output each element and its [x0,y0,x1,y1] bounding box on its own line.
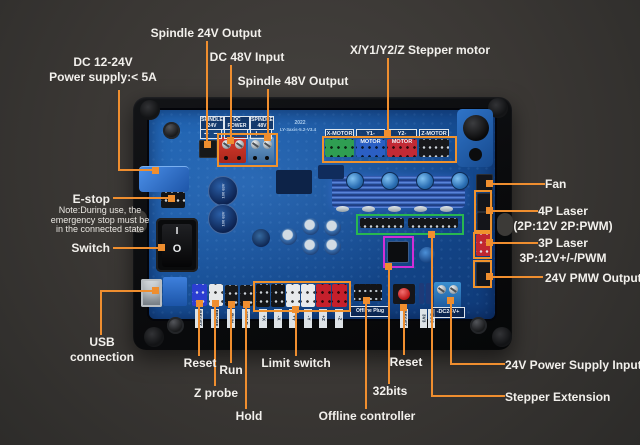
solder-pad [440,206,453,212]
stepper-extension-highlight-box [356,214,464,235]
callout-text: in the connected state [20,225,180,235]
callout-line [100,290,154,292]
callout-marker [385,263,392,270]
capacitor [324,219,341,236]
cap-marking: 100 63V [221,184,225,199]
callout-marker [227,137,234,144]
callout-marker [168,195,175,202]
solder-pad [336,206,349,212]
solder-pad [414,206,427,212]
terminal-screw [449,285,458,294]
callout-marker [486,239,493,246]
callout-marker [400,304,407,311]
cap-marking: 100 63V [221,212,225,227]
callout-text: 3P Laser [538,236,588,250]
callout-text: connection [32,350,172,365]
controller-board-diagram: SPINDLE 24V DC POWER 48V SPINDLE 48V +− … [0,0,640,445]
resistor [419,283,424,304]
callout-stepper-motor: X/Y1/Y2/Z Stepper motor [330,43,510,58]
callout-text: Power supply:< 5A [23,70,183,85]
callout-line [387,58,389,132]
callout-line [118,90,120,171]
knob [463,115,489,141]
callout-line [230,308,232,363]
usb-connector-housing [163,277,187,306]
callout-text: (2P:12V 2P:PWM) [498,219,628,234]
silk-spindle-24v: SPINDLE 24V [200,116,224,130]
callout-line [403,311,405,355]
case-hole-bottom-right [492,327,512,347]
silk-3v3: 3V3 [420,309,427,328]
silk-text: -X [276,316,281,321]
callout-marker [486,180,493,187]
callout-line [267,89,269,136]
ic-chip [318,165,344,179]
silk-text: +X [261,315,266,321]
driver-trimpot [416,172,434,190]
capacitor [252,229,270,247]
capacitor [280,228,297,245]
callout-32bits: 32bits [350,384,430,399]
callout-marker [243,301,250,308]
silk-year: 2022 [288,120,312,126]
hex-screw [163,122,180,139]
callout-marker [486,273,493,280]
terminal-screw [437,285,446,294]
callout-spindle-24v-output: Spindle 24V Output [126,26,286,41]
callout-marker [212,300,219,307]
callout-text: 4P Laser [538,204,588,218]
callout-switch: Switch [20,241,110,256]
hex-screw [470,317,487,334]
callout-dc-48v-input: DC 48V Input [187,50,307,65]
silk-text: 3V3 [421,314,426,323]
hex-screw [167,317,184,334]
callout-text: DC 12-24V [73,55,132,69]
capacitor [302,238,319,255]
silk-text: -Z [337,316,342,321]
electrolytic-capacitor: 100 63V [208,176,238,206]
callout-hold: Hold [214,409,284,424]
callout-line [431,238,433,397]
capacitor [324,238,341,255]
callout-psu-input: 24V Power Supply Input [505,358,640,373]
screw-hole [469,148,482,161]
callout-text: 3P:12V+/-/PWM [498,251,628,266]
silk-dc24v: -DC24V+ [431,307,465,318]
callout-line [100,290,102,335]
callout-line [450,304,452,365]
callout-marker [428,231,435,238]
callout-reset-right: Reset [366,355,446,370]
driver-trimpot [451,172,469,190]
callout-3p-laser: 3P Laser 3P:12V+/-/PWM [498,236,628,266]
callout-marker [363,297,370,304]
silk-text: -Y [306,316,311,321]
callout-marker [486,207,493,214]
callout-line [431,395,505,397]
solder-pad [388,206,401,212]
callout-text: USB [89,335,114,349]
callout-4p-laser: 4P Laser (2P:12V 2P:PWM) [498,204,628,234]
callout-marker [196,300,203,307]
electrolytic-capacitor: 100 63V [208,204,238,234]
callout-line [295,313,297,356]
limit-switch-highlight-box [253,281,351,312]
callout-pmw-output: 24V PMW Output [545,271,640,286]
callout-marker [264,134,271,141]
callout-dc-power: DC 12-24V Power supply:< 5A [23,55,183,85]
callout-stepper-extension: Stepper Extension [505,390,610,405]
callout-marker [158,244,165,251]
callout-line [198,307,200,356]
callout-z-probe: Z probe [176,386,256,401]
switch-off-mark: O [162,240,192,258]
callout-marker [447,297,454,304]
callout-marker [292,306,299,313]
silk-dc-power-48v: DC POWER 48V [224,116,250,130]
motor-connectors-highlight-box [322,136,457,163]
callout-marker [228,301,235,308]
driver-trimpot [346,172,364,190]
callout-marker [152,167,159,174]
callout-offline-controller: Offline controller [297,409,437,424]
callout-line [493,183,545,185]
callout-line [118,169,155,171]
callout-limit-switch: Limit switch [246,356,346,371]
callout-line [450,363,505,365]
callout-marker [384,130,391,137]
case-hole-top-left [140,100,160,120]
silk-model: LY-3axis-5.2-V3.4 [270,127,326,133]
callout-marker [152,287,159,294]
silk-text: +Z [321,316,326,322]
ic-chip [276,170,312,194]
callout-spindle-48v-output: Spindle 48V Output [213,74,373,89]
callout-marker [204,141,211,148]
reset-button[interactable] [398,288,410,300]
silk-offline-plug: Offline Plug [350,306,390,317]
callout-line [113,197,170,199]
solder-pad [362,206,375,212]
capacitor [302,218,319,235]
callout-fan: Fan [545,177,566,192]
callout-usb: USB connection [32,335,172,365]
callout-line [113,247,161,249]
callout-e-stop-note: Note:During use, the emergency stop must… [20,206,180,235]
callout-line [493,276,543,278]
driver-trimpot [381,172,399,190]
